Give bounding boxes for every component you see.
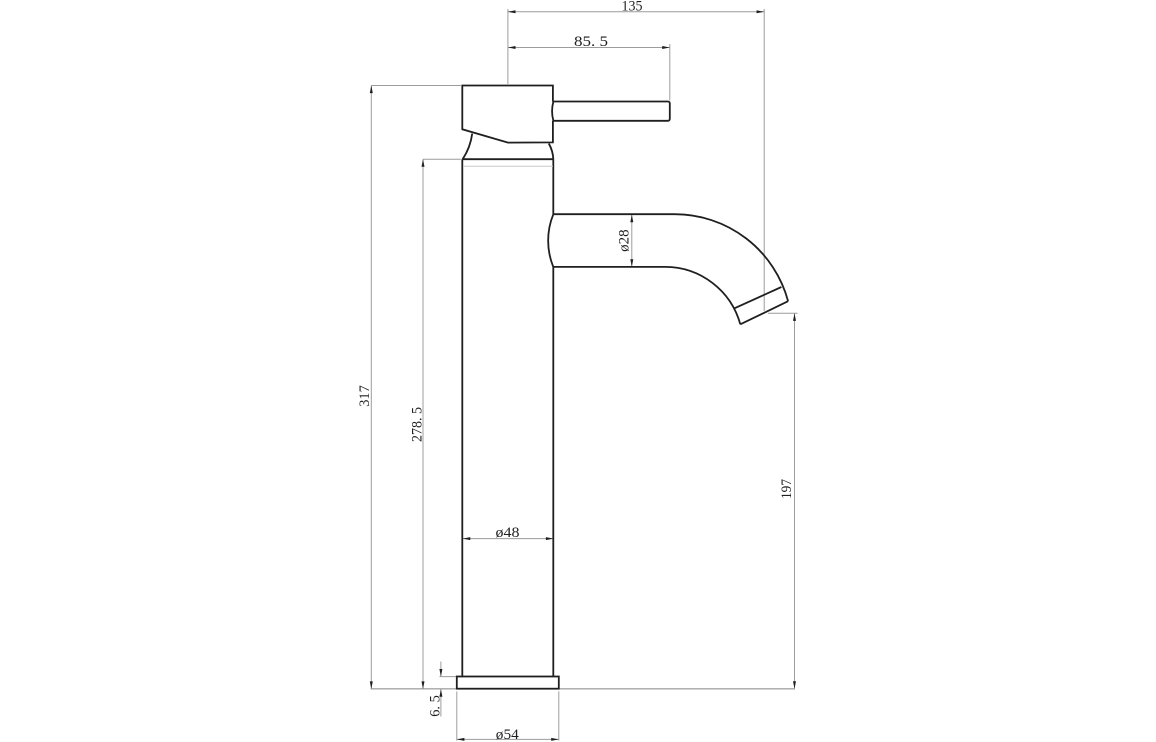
svg-text:ø48: ø48: [496, 525, 520, 541]
svg-text:135: 135: [622, 0, 643, 15]
svg-text:317: 317: [357, 385, 373, 407]
svg-text:278. 5: 278. 5: [409, 407, 425, 442]
svg-text:ø28: ø28: [616, 229, 632, 252]
svg-text:ø54: ø54: [496, 727, 520, 742]
svg-text:197: 197: [779, 479, 795, 499]
svg-text:6. 5: 6. 5: [427, 695, 443, 717]
svg-text:85. 5: 85. 5: [574, 34, 608, 50]
